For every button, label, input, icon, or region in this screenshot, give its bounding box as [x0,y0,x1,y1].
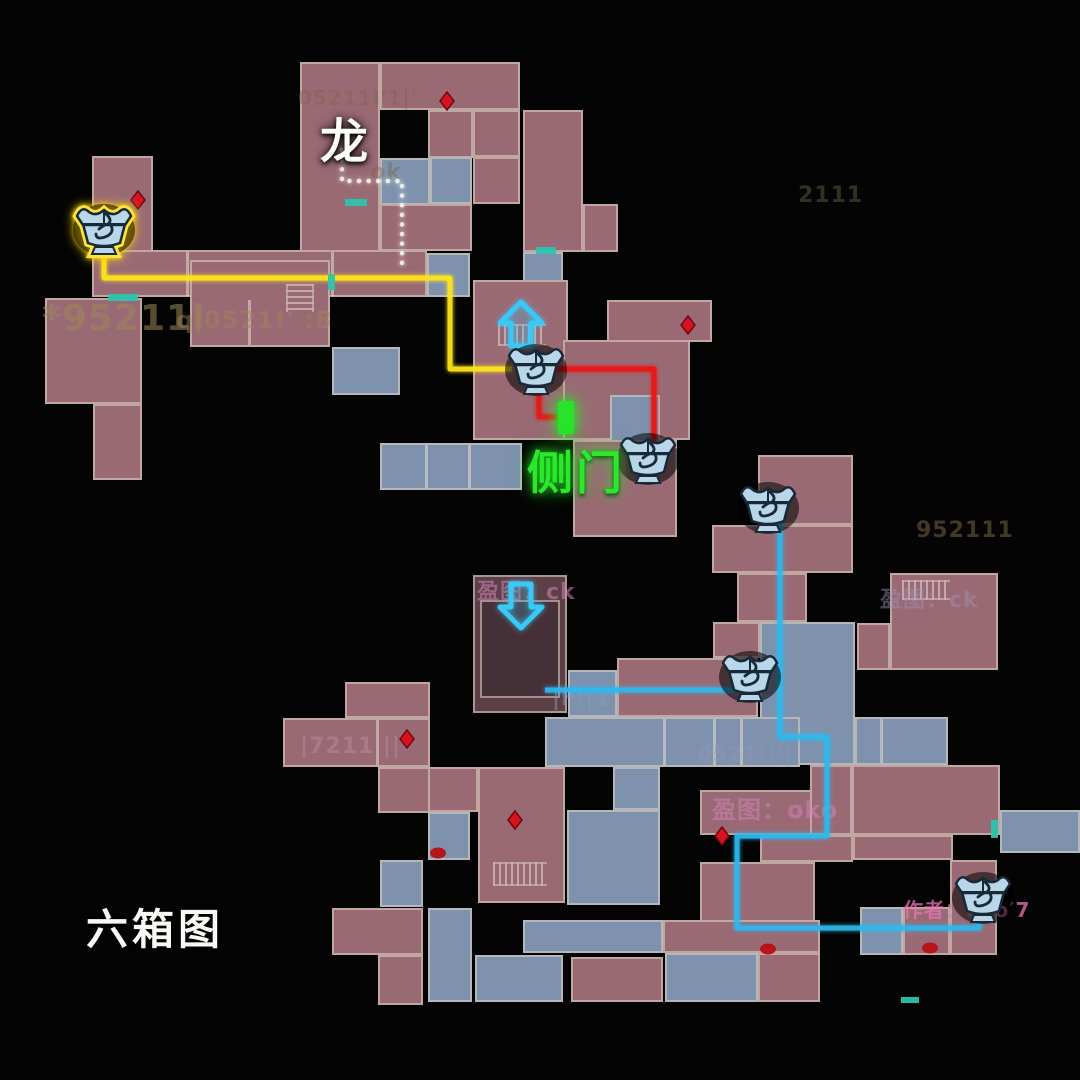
map-room [665,953,758,1002]
room-divider [468,445,471,488]
room-divider [740,719,743,765]
room-divider [331,252,334,296]
map-room [332,908,423,955]
map-room [380,443,522,490]
map-room [473,280,568,440]
map-room [855,717,948,765]
map-room [610,395,660,443]
map-room [545,717,800,767]
map-room [428,908,472,1002]
map-room [332,347,400,395]
map-room [700,862,815,928]
map-room [853,835,953,860]
map-room [428,812,470,860]
map-room [758,455,853,525]
map-room [523,110,583,252]
map-room [345,682,430,718]
map-room [712,525,853,573]
map-room [473,157,520,204]
map-room [378,767,430,813]
map-room [568,670,617,717]
map-room [473,110,520,157]
stairs-icon [286,284,314,312]
map-room [607,300,712,342]
map-room [430,157,472,204]
room-divider [248,300,251,345]
map-room [378,955,423,1005]
map-room [380,62,520,110]
map-room [613,767,660,810]
map-room [760,835,853,862]
map-room [428,767,478,812]
room-divider [186,252,189,296]
map-room [663,920,820,953]
map-room [583,204,618,252]
map-room [737,573,807,622]
stairs-icon [902,580,950,600]
room-divider [663,719,666,765]
map-room [860,907,903,955]
watermark-text: 952111 [916,518,1014,543]
map-room [758,953,820,1002]
map-room [475,955,563,1002]
map-room [427,253,470,297]
map-room [852,765,1000,835]
map-room [428,110,473,158]
label-dragon: 龙 [320,102,368,172]
watermark-text: 2111 [798,183,863,208]
stairs-icon [498,324,546,346]
map-room [567,810,660,905]
map-room [950,860,997,955]
room-divider [713,719,716,765]
map-room [380,158,430,205]
map-room [45,298,142,404]
stairs-icon [493,862,547,886]
room-divider [425,445,428,488]
label-side-door: 侧门 [527,437,625,503]
map-room [617,658,758,717]
map-room [380,860,423,907]
map-room [857,623,890,670]
six-chest-map: *95211lq|0521!' :805211l'1|'2111ok盈图：ck盈… [0,0,1080,1080]
map-room [810,765,852,835]
map-room [700,790,812,835]
map-room [480,600,560,698]
map-room [571,957,663,1002]
map-room [1000,810,1080,853]
map-room [523,920,663,953]
map-room [93,404,142,480]
map-room [713,622,760,658]
map-room [380,204,472,251]
label-map-title: 六箱图 [86,896,224,957]
map-room [283,718,430,767]
room-divider [880,719,883,763]
map-room [92,156,153,252]
door-marker [901,997,919,1003]
map-room [903,907,950,955]
room-divider [376,720,379,765]
